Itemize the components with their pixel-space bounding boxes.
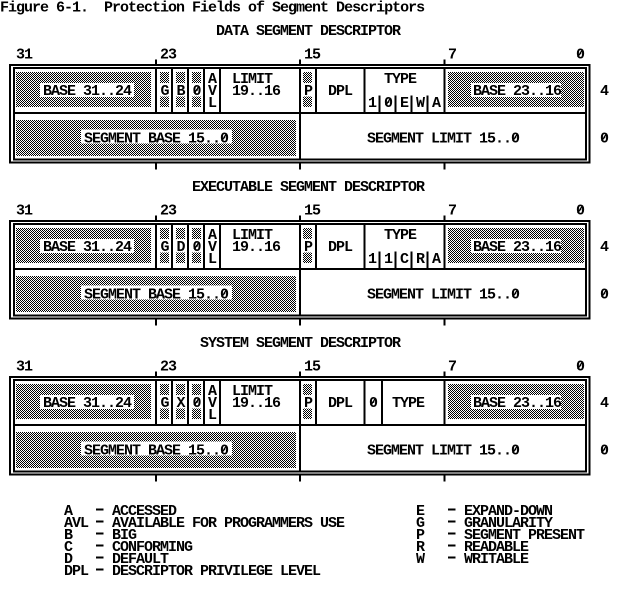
svg-text:SEGMENT BASE 15..0: SEGMENT BASE 15..0 [84, 443, 229, 460]
svg-text:23: 23 [160, 203, 177, 220]
svg-text:SEGMENT BASE 15..0: SEGMENT BASE 15..0 [84, 131, 229, 148]
svg-text:TYPE: TYPE [384, 71, 417, 88]
svg-text:C: C [400, 251, 409, 268]
svg-text:15: 15 [304, 203, 321, 220]
svg-text:R: R [416, 251, 425, 268]
svg-text:15: 15 [304, 359, 321, 376]
svg-text:E: E [400, 95, 409, 112]
svg-text:SEGMENT LIMIT 15..0: SEGMENT LIMIT 15..0 [367, 443, 520, 460]
svg-text:SEGMENT BASE 15..0: SEGMENT BASE 15..0 [84, 287, 229, 304]
svg-text:0: 0 [193, 83, 202, 100]
svg-text:G: G [161, 239, 170, 256]
svg-text:7: 7 [448, 203, 456, 220]
svg-text:BASE 23..16: BASE 23..16 [473, 83, 562, 100]
svg-text:7: 7 [448, 359, 456, 376]
svg-text:4: 4 [600, 83, 609, 100]
svg-text:4: 4 [600, 395, 609, 412]
svg-text:0: 0 [600, 443, 609, 460]
svg-text:0: 0 [576, 359, 585, 376]
svg-text:1: 1 [384, 251, 393, 268]
svg-text:G: G [161, 83, 170, 100]
svg-text:BASE 31..24: BASE 31..24 [43, 395, 132, 412]
svg-text:AVAILABLE FOR PROGRAMMERS USE: AVAILABLE FOR PROGRAMMERS USE [112, 515, 345, 532]
svg-text:A: A [432, 251, 441, 268]
svg-text:D: D [177, 239, 186, 256]
svg-text:0: 0 [193, 395, 202, 412]
svg-text:P: P [304, 83, 313, 100]
svg-text:1: 1 [368, 251, 377, 268]
svg-text:1: 1 [368, 95, 377, 112]
svg-text:BASE 23..16: BASE 23..16 [473, 395, 562, 412]
svg-text:P: P [304, 395, 313, 412]
svg-text:DPL: DPL [328, 395, 353, 412]
svg-text:Figure 6-1. Protection Fields: Figure 6-1. Protection Fields of Segment… [0, 0, 425, 17]
svg-text:W: W [416, 95, 425, 112]
svg-text:4: 4 [600, 239, 609, 256]
svg-text:31: 31 [16, 203, 33, 220]
svg-text:23: 23 [160, 359, 177, 376]
svg-text:31: 31 [16, 47, 33, 64]
svg-text:DATA SEGMENT DESCRIPTOR: DATA SEGMENT DESCRIPTOR [216, 23, 401, 40]
svg-text:DPL: DPL [64, 563, 89, 580]
svg-text:19..16: 19..16 [232, 239, 281, 256]
svg-text:EXECUTABLE SEGMENT DESCRIPTOR: EXECUTABLE SEGMENT DESCRIPTOR [192, 179, 425, 196]
svg-text:P: P [304, 239, 313, 256]
svg-text:BASE 31..24: BASE 31..24 [43, 239, 132, 256]
svg-text:L: L [208, 407, 217, 424]
svg-text:0: 0 [384, 95, 393, 112]
svg-text:31: 31 [16, 359, 33, 376]
svg-text:SEGMENT LIMIT 15..0: SEGMENT LIMIT 15..0 [367, 287, 520, 304]
svg-text:19..16: 19..16 [232, 395, 281, 412]
svg-text:0: 0 [576, 47, 585, 64]
svg-text:0: 0 [369, 395, 378, 412]
svg-text:0: 0 [193, 239, 202, 256]
svg-text:G: G [161, 395, 170, 412]
svg-text:DPL: DPL [328, 239, 353, 256]
svg-text:0: 0 [600, 131, 609, 148]
svg-text:TYPE: TYPE [384, 227, 417, 244]
svg-text:A: A [432, 95, 441, 112]
svg-text:BASE 23..16: BASE 23..16 [473, 239, 562, 256]
svg-text:L: L [208, 251, 217, 268]
svg-text:0: 0 [600, 287, 609, 304]
svg-text:TYPE: TYPE [392, 395, 425, 412]
svg-text:W: W [416, 551, 425, 568]
svg-text:DESCRIPTOR PRIVILEGE LEVEL: DESCRIPTOR PRIVILEGE LEVEL [112, 563, 321, 580]
svg-text:7: 7 [448, 47, 456, 64]
svg-text:15: 15 [304, 47, 321, 64]
svg-text:DPL: DPL [328, 83, 353, 100]
svg-text:SEGMENT LIMIT 15..0: SEGMENT LIMIT 15..0 [367, 131, 520, 148]
svg-text:WRITABLE: WRITABLE [464, 551, 529, 568]
svg-text:0: 0 [576, 203, 585, 220]
svg-text:SYSTEM SEGMENT DESCRIPTOR: SYSTEM SEGMENT DESCRIPTOR [200, 335, 401, 352]
svg-text:BASE 31..24: BASE 31..24 [43, 83, 132, 100]
svg-text:19..16: 19..16 [232, 83, 281, 100]
svg-text:B: B [177, 83, 186, 100]
svg-text:L: L [208, 95, 217, 112]
svg-text:X: X [177, 395, 186, 412]
svg-text:23: 23 [160, 47, 177, 64]
